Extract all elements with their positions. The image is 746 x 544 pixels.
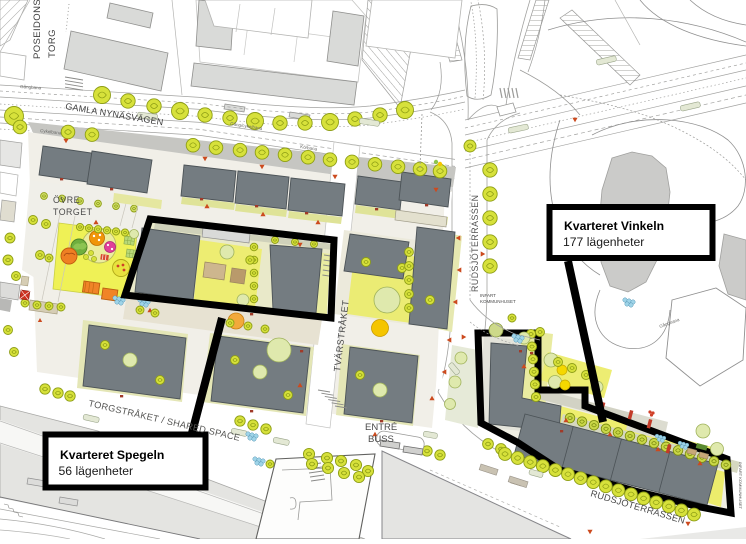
svg-text:56 lägenheter: 56 lägenheter (59, 464, 134, 478)
svg-text:177 lägenheter: 177 lägenheter (563, 235, 644, 249)
svg-text:INFART: INFART (480, 293, 496, 298)
svg-text:RUDSJÖTERRASSEN: RUDSJÖTERRASSEN (470, 195, 480, 292)
svg-text:TORGET: TORGET (53, 207, 93, 217)
svg-text:POSEIDONS: POSEIDONS (32, 0, 43, 59)
svg-text:KOMMUNHUSET: KOMMUNHUSET (480, 299, 516, 304)
svg-text:ENTRÉ: ENTRÉ (365, 422, 397, 433)
svg-text:BUSS: BUSS (368, 434, 394, 445)
svg-text:Kvarteret Vinkeln: Kvarteret Vinkeln (564, 219, 664, 233)
svg-text:INFART KOMMUNHUSET: INFART KOMMUNHUSET (738, 462, 743, 510)
svg-text:TORG: TORG (47, 29, 58, 58)
svg-text:ÖVRE: ÖVRE (53, 195, 80, 205)
svg-text:Kvarteret Spegeln: Kvarteret Spegeln (60, 448, 164, 462)
